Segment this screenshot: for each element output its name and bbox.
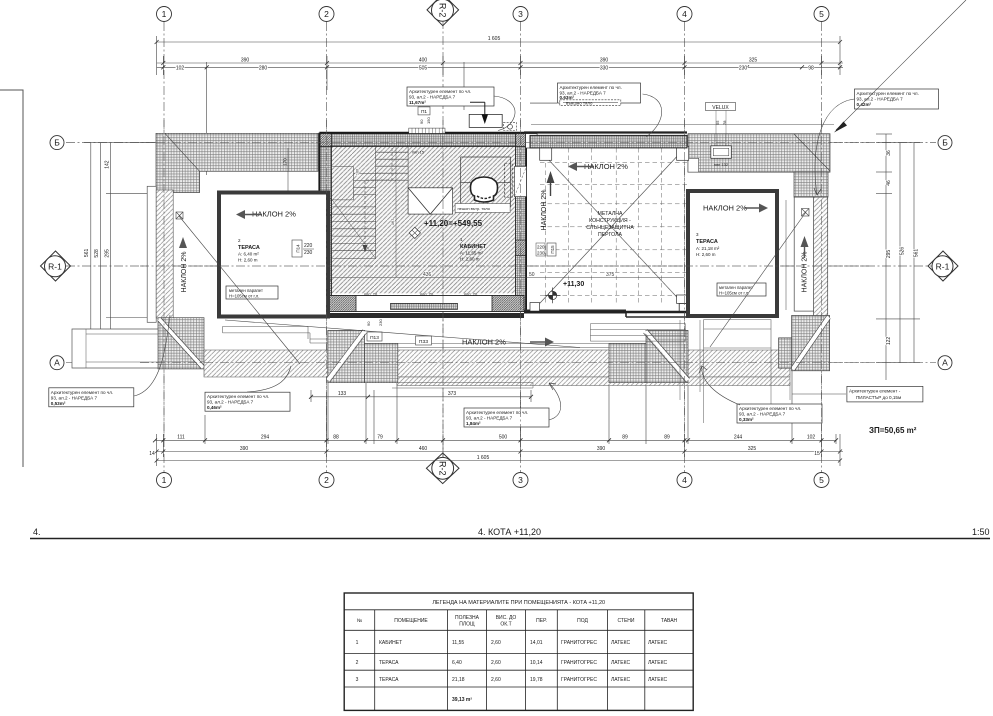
svg-text:1: 1	[162, 475, 167, 485]
svg-text:външно тяло: външно тяло	[566, 101, 593, 106]
svg-text:2,60: 2,60	[491, 640, 501, 646]
svg-text:ПЗЗ: ПЗЗ	[419, 339, 428, 345]
svg-text:93, ал.2 - НАРЕДБА 7: 93, ал.2 - НАРЕДБА 7	[409, 95, 456, 100]
svg-text:метален парапет: метален парапет	[229, 288, 263, 293]
svg-text:ЛАТЕКС: ЛАТЕКС	[611, 640, 630, 646]
svg-text:0,42m²: 0,42m²	[857, 102, 872, 107]
svg-text:Архитектурен елемент -: Архитектурен елемент -	[849, 388, 901, 393]
svg-text:СЛЪНЦЕЗАЩИТНА: СЛЪНЦЕЗАЩИТНА	[586, 225, 634, 231]
svg-text:R-2: R-2	[438, 461, 448, 476]
svg-text:А: А	[942, 358, 948, 368]
svg-text:МЕТАЛНА: МЕТАЛНА	[598, 211, 624, 217]
svg-text:375: 375	[606, 272, 615, 278]
svg-text:561: 561	[914, 249, 920, 258]
svg-text:2: 2	[324, 475, 329, 485]
svg-text:ЛАТЕКС: ЛАТЕКС	[611, 660, 630, 666]
svg-text:280: 280	[259, 66, 268, 72]
svg-text:2,60: 2,60	[491, 660, 501, 666]
svg-text:230: 230	[304, 250, 313, 256]
svg-text:2: 2	[324, 9, 329, 19]
svg-text:ТЕРАСА: ТЕРАСА	[379, 660, 399, 666]
svg-text:3: 3	[356, 677, 359, 683]
svg-text:ОК.Т: ОК.Т	[500, 622, 511, 628]
svg-text:1: 1	[356, 640, 359, 646]
svg-text:№: №	[357, 618, 362, 624]
svg-text:142: 142	[105, 160, 111, 169]
svg-text:2: 2	[356, 660, 359, 666]
svg-text:390: 390	[597, 446, 606, 452]
svg-text:КОНСТРУКЦИЯ -: КОНСТРУКЦИЯ -	[589, 218, 631, 224]
svg-text:93, ал.2 - НАРЕДБА 7: 93, ал.2 - НАРЕДБА 7	[466, 416, 513, 421]
svg-text:1 605: 1 605	[488, 36, 501, 42]
svg-text:46: 46	[886, 180, 892, 186]
svg-text:14,01: 14,01	[530, 640, 543, 646]
svg-text:НАКЛОН 2%: НАКЛОН 2%	[541, 190, 548, 231]
svg-text:КАБИНЕТ: КАБИНЕТ	[379, 640, 402, 646]
svg-text:A: 11,55 m²: A: 11,55 m²	[460, 251, 483, 256]
svg-text:П15: П15	[550, 245, 555, 254]
svg-text:6,40: 6,40	[452, 660, 462, 666]
svg-text:4: 4	[682, 9, 687, 19]
svg-text:230: 230	[537, 251, 545, 256]
svg-text:4. КОТА +11,20: 4. КОТА +11,20	[478, 527, 541, 537]
svg-text:ПЕР.: ПЕР.	[536, 618, 547, 624]
svg-text:1: 1	[162, 9, 167, 19]
svg-text:19,78: 19,78	[530, 677, 543, 683]
svg-text:ТЕРАСА: ТЕРАСА	[238, 245, 260, 251]
svg-text:VELUX: VELUX	[712, 105, 729, 111]
svg-text:89: 89	[664, 435, 670, 441]
svg-text:ПЛОЩ: ПЛОЩ	[459, 622, 475, 628]
svg-text:ТАВАН: ТАВАН	[661, 618, 678, 624]
svg-text:ппп: 20: ппп: 20	[364, 292, 378, 297]
svg-text:КАБИНЕТ: КАБИНЕТ	[460, 244, 487, 250]
svg-text:A: 6,40 m²: A: 6,40 m²	[238, 252, 259, 257]
svg-text:A: 21,18 m²: A: 21,18 m²	[696, 246, 720, 251]
svg-text:1:50: 1:50	[972, 527, 990, 537]
svg-text:4.: 4.	[33, 527, 41, 537]
svg-text:390: 390	[240, 446, 249, 452]
svg-text:4: 4	[682, 475, 687, 485]
svg-text:H: 2,60 m: H: 2,60 m	[696, 252, 716, 257]
svg-text:+11,20=+549,55: +11,20=+549,55	[424, 219, 483, 228]
svg-text:ЛАТЕКС: ЛАТЕКС	[648, 660, 667, 666]
svg-text:330: 330	[600, 66, 609, 72]
svg-text:1 605: 1 605	[477, 455, 490, 461]
svg-text:14: 14	[149, 451, 155, 457]
svg-text:Н=105см от г.л.: Н=105см от г.л.	[719, 291, 749, 296]
svg-text:П13: П13	[370, 335, 379, 341]
svg-text:93, ал.2 - НАРЕДБА 7: 93, ал.2 - НАРЕДБА 7	[51, 395, 98, 400]
svg-text:102: 102	[807, 435, 816, 441]
svg-text:+11,30: +11,30	[563, 281, 584, 288]
svg-text:ГРАНИТОГРЕС: ГРАНИТОГРЕС	[561, 640, 597, 646]
svg-text:ГРАНИТОГРЕС: ГРАНИТОГРЕС	[561, 660, 597, 666]
svg-text:102: 102	[176, 66, 185, 72]
svg-text:НАКЛОН 2%: НАКЛОН 2%	[703, 204, 747, 213]
svg-text:R-1: R-1	[936, 261, 950, 271]
svg-text:0,46m²: 0,46m²	[207, 405, 222, 410]
svg-text:89: 89	[622, 435, 628, 441]
svg-text:ВИС. ДО: ВИС. ДО	[496, 615, 517, 621]
svg-text:294: 294	[261, 435, 270, 441]
svg-text:90: 90	[366, 321, 371, 326]
svg-text:метален парапет: метален парапет	[719, 285, 753, 290]
svg-text:367: 367	[390, 218, 395, 225]
svg-text:5: 5	[819, 475, 824, 485]
svg-text:122: 122	[886, 337, 892, 346]
svg-text:220: 220	[537, 245, 545, 250]
svg-text:ПОМЕЩЕНИЕ: ПОМЕЩЕНИЕ	[394, 618, 428, 624]
svg-text:0,33m²: 0,33m²	[739, 417, 754, 422]
svg-text:390: 390	[600, 58, 609, 64]
svg-text:П1: П1	[421, 109, 427, 115]
svg-text:Архитектурен елемент по чл.: Архитектурен елемент по чл.	[207, 394, 269, 399]
svg-text:Архитектурен елемент по чл.: Архитектурен елемент по чл.	[51, 390, 113, 395]
svg-text:111: 111	[177, 435, 185, 441]
svg-text:150: 150	[426, 117, 431, 124]
svg-text:ТЕРАСА: ТЕРАСА	[379, 677, 399, 683]
svg-text:ппп: 20: ппп: 20	[464, 292, 478, 297]
svg-text:0,63m²: 0,63m²	[560, 95, 575, 100]
svg-text:Б: Б	[54, 138, 60, 148]
svg-text:Архитектурен елемент по чл.: Архитектурен елемент по чл.	[409, 89, 471, 94]
svg-text:133: 133	[338, 391, 347, 397]
svg-text:15: 15	[814, 451, 820, 457]
svg-text:390: 390	[241, 58, 250, 64]
svg-text:11,55: 11,55	[452, 640, 464, 646]
svg-text:ЛЕГЕНДА НА МАТЕРИАЛИТЕ ПРИ ПОМ: ЛЕГЕНДА НА МАТЕРИАЛИТЕ ПРИ ПОМЕЩЕНИЯТА -…	[432, 600, 605, 606]
svg-text:78: 78	[722, 120, 727, 125]
svg-text:3: 3	[518, 475, 523, 485]
svg-text:пешон вътр. тяло: пешон вътр. тяло	[458, 206, 491, 211]
svg-text:373: 373	[448, 391, 457, 397]
svg-text:H: 2,60 m: H: 2,60 m	[460, 257, 480, 262]
svg-text:295: 295	[105, 249, 111, 258]
svg-text:ЛАТЕКС: ЛАТЕКС	[611, 677, 630, 683]
svg-text:170: 170	[283, 158, 288, 166]
svg-text:ПОЛЕЗНА: ПОЛЕЗНА	[455, 615, 480, 621]
svg-text:39,13 m²: 39,13 m²	[452, 697, 472, 703]
svg-text:ЛАТЕКС: ЛАТЕКС	[648, 640, 667, 646]
svg-text:505: 505	[419, 66, 428, 72]
svg-text:3: 3	[518, 9, 523, 19]
svg-text:400: 400	[419, 58, 428, 64]
svg-text:2,60: 2,60	[491, 677, 501, 683]
svg-text:0,53m²: 0,53m²	[51, 401, 66, 406]
svg-text:93, ал.2 - НАРЕДБА 7: 93, ал.2 - НАРЕДБА 7	[739, 412, 786, 417]
svg-text:ЛАТЕКС: ЛАТЕКС	[648, 677, 667, 683]
svg-text:А: А	[54, 358, 60, 368]
svg-text:325: 325	[748, 446, 757, 452]
svg-text:93, ал.2 - НАРЕДБА 7: 93, ал.2 - НАРЕДБА 7	[857, 97, 904, 102]
svg-text:21,18: 21,18	[452, 677, 465, 683]
svg-text:220: 220	[304, 243, 313, 249]
svg-text:79: 79	[377, 435, 383, 441]
svg-text:325: 325	[749, 58, 758, 64]
svg-text:295: 295	[886, 250, 892, 259]
svg-text:244: 244	[734, 435, 743, 441]
svg-text:5: 5	[819, 9, 824, 19]
svg-text:Архитектурен елемент по чл.: Архитектурен елемент по чл.	[857, 91, 919, 96]
svg-text:526: 526	[900, 247, 906, 256]
svg-text:НАКЛОН 2%: НАКЛОН 2%	[181, 252, 188, 293]
svg-text:11,67m²: 11,67m²	[409, 100, 426, 105]
svg-text:СТЕНИ: СТЕНИ	[617, 618, 634, 624]
svg-text:100: 100	[356, 169, 360, 175]
svg-text:ПИЛАСТЪР до 0,15м: ПИЛАСТЪР до 0,15м	[856, 395, 901, 400]
svg-text:93, ал.2 - НАРЕДБА 7: 93, ал.2 - НАРЕДБА 7	[207, 400, 254, 405]
svg-text:ГРАНИТОГРЕС: ГРАНИТОГРЕС	[561, 677, 597, 683]
svg-text:Архитектурен елемент по чл.: Архитектурен елемент по чл.	[739, 406, 801, 411]
svg-text:R-2: R-2	[437, 3, 447, 18]
svg-text:436: 436	[423, 272, 432, 278]
svg-text:98: 98	[808, 66, 814, 72]
svg-text:ЗП=50,65 m²: ЗП=50,65 m²	[869, 426, 917, 435]
svg-text:H: 2,60 m: H: 2,60 m	[238, 258, 258, 263]
svg-text:460: 460	[419, 446, 428, 452]
svg-text:R-1: R-1	[48, 261, 62, 271]
svg-text:ТЕРАСА: ТЕРАСА	[696, 239, 718, 245]
svg-text:230: 230	[378, 319, 383, 326]
svg-text:230: 230	[739, 66, 748, 72]
svg-text:36: 36	[886, 150, 892, 156]
svg-text:Архитектурен елемент по чл.: Архитектурен елемент по чл.	[560, 85, 622, 90]
svg-text:ппп: 20: ппп: 20	[420, 292, 434, 297]
svg-text:ппп 15: ппп 15	[412, 150, 425, 155]
svg-text:ПОД: ПОД	[577, 618, 588, 624]
svg-text:50: 50	[529, 272, 535, 278]
svg-text:561: 561	[84, 249, 90, 258]
svg-text:1,84m²: 1,84m²	[466, 421, 481, 426]
svg-text:88: 88	[333, 435, 339, 441]
svg-text:ппп 132: ппп 132	[714, 162, 729, 167]
svg-text:П14: П14	[296, 244, 301, 253]
svg-text:500: 500	[499, 435, 508, 441]
svg-text:Б: Б	[942, 138, 948, 148]
svg-text:ПЕРГОЛА: ПЕРГОЛА	[598, 232, 623, 238]
svg-text:10,14: 10,14	[530, 660, 543, 666]
svg-text:Архитектурен елемент по чл.: Архитектурен елемент по чл.	[466, 410, 528, 415]
svg-text:90: 90	[419, 119, 424, 124]
svg-text:55: 55	[715, 120, 720, 125]
svg-text:528: 528	[94, 249, 100, 258]
